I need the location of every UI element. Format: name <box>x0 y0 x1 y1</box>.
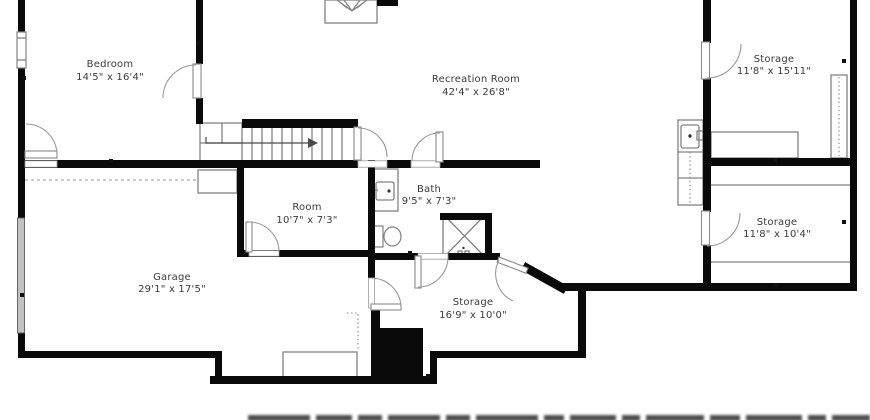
next-floor-blur-band <box>248 415 870 420</box>
workbench <box>283 352 357 377</box>
room-label-bath-dims: 9'5" x 7'3" <box>402 196 457 207</box>
bedroom-window <box>17 32 26 68</box>
bedroom-entry-door <box>163 64 201 98</box>
bedroom-closet-bench <box>198 170 237 193</box>
storage-center-angled-door <box>496 257 528 301</box>
room-label-storage-center-dims: 16'9" x 10'0" <box>439 310 507 321</box>
room-label-recreation-name: Recreation Room <box>432 74 520 85</box>
storage-shelf <box>831 75 847 158</box>
room-label-storage-center-name: Storage <box>453 297 494 308</box>
room-label-recreation-dims: 42'4" x 26'8" <box>442 87 510 98</box>
stairs <box>200 123 355 162</box>
room-door <box>246 222 279 252</box>
storage-counter <box>711 132 798 158</box>
stairs-door <box>354 127 387 160</box>
room-label-garage-name: Garage <box>153 272 191 283</box>
toilet-icon <box>374 226 401 247</box>
room-label-room-dims: 10'7" x 7'3" <box>276 215 337 226</box>
room-label-storage-tr-name: Storage <box>754 54 795 65</box>
room-label-bedroom-dims: 14'5" x 16'4" <box>76 72 144 83</box>
bedroom-left-door <box>25 124 57 158</box>
chimney-mass <box>371 328 423 380</box>
bath-door <box>412 132 443 162</box>
sink-icon <box>372 169 398 211</box>
storage-top-right-door <box>702 42 742 79</box>
dimension-ticks <box>20 41 846 378</box>
water-heater-icon <box>678 120 703 205</box>
floor-plan: Bedroom 14'5" x 16'4" Recreation Room 42… <box>0 0 870 420</box>
room-label-garage-dims: 29'1" x 17'5" <box>138 284 206 295</box>
room-label-bedroom-name: Bedroom <box>87 59 134 70</box>
room-label-storage-tr-dims: 11'8" x 15'11" <box>737 66 811 77</box>
dotted-opening-line <box>347 313 358 351</box>
floorplan-page: Bedroom 14'5" x 16'4" Recreation Room 42… <box>0 0 870 420</box>
storage-center-top-door <box>415 256 448 288</box>
shower-icon <box>443 214 484 258</box>
room-label-storage-br-name: Storage <box>757 217 798 228</box>
garage-door <box>18 218 25 333</box>
storage-bottom-right-door <box>702 211 741 246</box>
chimney-mass-stem <box>371 308 380 330</box>
room-label-room-name: Room <box>292 202 321 213</box>
fireplace-icon <box>325 0 377 23</box>
storage-center-left-door <box>371 278 401 310</box>
room-label-bath-name: Bath <box>417 184 441 195</box>
room-label-storage-br-dims: 11'8" x 10'4" <box>743 229 811 240</box>
